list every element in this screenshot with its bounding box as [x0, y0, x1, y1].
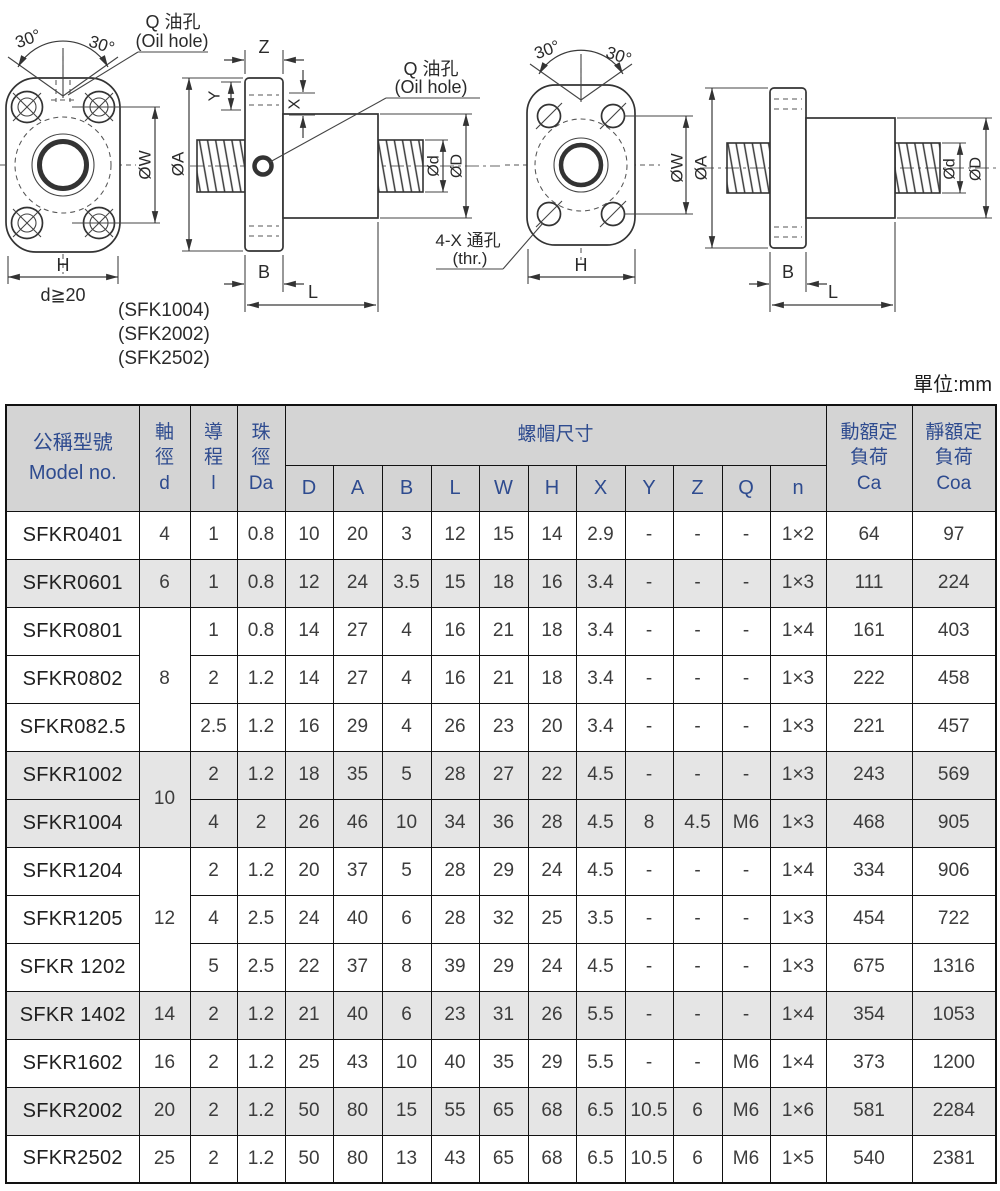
dim-ow: ØW	[136, 150, 155, 179]
dynamic-load-cell: 540	[826, 1135, 912, 1183]
value-cell: 10	[285, 511, 333, 559]
value-cell: 22	[285, 943, 333, 991]
value-cell: 40	[333, 991, 382, 1039]
value-cell: 8	[625, 799, 673, 847]
value-cell: 26	[528, 991, 576, 1039]
value-cell: 31	[479, 991, 528, 1039]
model-cell: SFKR1205	[6, 895, 139, 943]
value-cell: 12	[285, 559, 333, 607]
value-cell: 22	[528, 751, 576, 799]
header-model: 公稱型號 Model no.	[6, 405, 139, 511]
value-cell: -	[673, 703, 722, 751]
value-cell: -	[673, 655, 722, 703]
front-view-right: 30° 30° ØW H 4-X 通孔 (thr.)	[435, 37, 693, 284]
dim-od: Ød	[942, 158, 959, 179]
value-cell: 4.5	[576, 943, 625, 991]
value-cell: 50	[285, 1087, 333, 1135]
dynamic-load-cell: 454	[826, 895, 912, 943]
value-cell: 18	[528, 655, 576, 703]
model-note: (SFK2502)	[118, 348, 210, 368]
shaft-diameter-cell: 16	[139, 1039, 190, 1087]
value-cell: 43	[333, 1039, 382, 1087]
value-cell: -	[722, 847, 770, 895]
value-cell: 6.5	[576, 1135, 625, 1183]
model-note: (SFK2002)	[118, 324, 210, 345]
value-cell: 36	[479, 799, 528, 847]
value-cell: 18	[479, 559, 528, 607]
value-cell: -	[722, 895, 770, 943]
value-cell: 2	[190, 1039, 237, 1087]
value-cell: 15	[431, 559, 479, 607]
value-cell: 28	[431, 895, 479, 943]
value-cell: 29	[479, 943, 528, 991]
value-cell: 1.2	[237, 655, 285, 703]
dim-h: H	[575, 255, 588, 275]
shaft-diameter-cell: 12	[139, 847, 190, 991]
value-cell: 4.5	[576, 847, 625, 895]
value-cell: -	[673, 991, 722, 1039]
value-cell: 24	[528, 847, 576, 895]
value-cell: 1×4	[770, 607, 826, 655]
value-cell: 35	[333, 751, 382, 799]
value-cell: 4	[382, 607, 431, 655]
spec-table-body: SFKR0401410.8102031215142.9---1×26497SFK…	[6, 511, 996, 1183]
value-cell: 25	[528, 895, 576, 943]
model-cell: SFKR0401	[6, 511, 139, 559]
value-cell: 16	[431, 655, 479, 703]
value-cell: -	[722, 703, 770, 751]
header-col-L: L	[431, 465, 479, 511]
value-cell: 80	[333, 1087, 382, 1135]
value-cell: -	[625, 751, 673, 799]
value-cell: 10	[382, 799, 431, 847]
value-cell: 0.8	[237, 607, 285, 655]
value-cell: 34	[431, 799, 479, 847]
value-cell: 5.5	[576, 991, 625, 1039]
model-cell: SFKR1602	[6, 1039, 139, 1087]
value-cell: 8	[382, 943, 431, 991]
value-cell: 37	[333, 847, 382, 895]
header-lead: 導 程 l	[190, 405, 237, 511]
dynamic-load-cell: 468	[826, 799, 912, 847]
value-cell: -	[722, 751, 770, 799]
value-cell: -	[673, 847, 722, 895]
dynamic-load-cell: 243	[826, 751, 912, 799]
value-cell: 1×4	[770, 991, 826, 1039]
value-cell: 12	[431, 511, 479, 559]
value-cell: 46	[333, 799, 382, 847]
header-nut-dimensions: 螺帽尺寸	[285, 405, 826, 465]
value-cell: 5	[382, 847, 431, 895]
value-cell: 1.2	[237, 847, 285, 895]
value-cell: 3	[382, 511, 431, 559]
spec-table: 公稱型號 Model no. 軸 徑 d 導 程 l 珠 徑 Da 螺帽尺寸 動…	[5, 404, 997, 1184]
static-load-cell: 1316	[912, 943, 996, 991]
value-cell: 27	[333, 655, 382, 703]
header-dynamic-load: 動額定 負荷 Ca	[826, 405, 912, 511]
static-load-cell: 1053	[912, 991, 996, 1039]
dim-l: L	[828, 282, 838, 302]
value-cell: 29	[528, 1039, 576, 1087]
value-cell: 2	[237, 799, 285, 847]
value-cell: -	[722, 511, 770, 559]
static-load-cell: 457	[912, 703, 996, 751]
header-static-load: 靜額定 負荷 Coa	[912, 405, 996, 511]
value-cell: 5	[382, 751, 431, 799]
shaft-diameter-cell: 20	[139, 1087, 190, 1135]
side-view-right: ØA Ød ØD B L	[692, 88, 999, 312]
value-cell: 24	[333, 559, 382, 607]
value-cell: 1	[190, 511, 237, 559]
value-cell: 20	[285, 847, 333, 895]
dynamic-load-cell: 581	[826, 1087, 912, 1135]
dim-ow: ØW	[668, 153, 687, 182]
value-cell: 50	[285, 1135, 333, 1183]
value-cell: 14	[285, 655, 333, 703]
angle-label: 30°	[532, 37, 563, 64]
value-cell: 2.5	[190, 703, 237, 751]
angle-label: 30°	[13, 26, 44, 53]
value-cell: 1.2	[237, 751, 285, 799]
value-cell: 20	[333, 511, 382, 559]
model-cell: SFKR1204	[6, 847, 139, 895]
value-cell: 26	[285, 799, 333, 847]
value-cell: 15	[479, 511, 528, 559]
value-cell: -	[673, 607, 722, 655]
value-cell: 10.5	[625, 1087, 673, 1135]
static-load-cell: 458	[912, 655, 996, 703]
value-cell: 1×3	[770, 559, 826, 607]
value-cell: 4	[190, 895, 237, 943]
value-cell: 3.4	[576, 655, 625, 703]
value-cell: 1×4	[770, 1039, 826, 1087]
value-cell: 28	[528, 799, 576, 847]
value-cell: 1×3	[770, 895, 826, 943]
value-cell: -	[673, 751, 722, 799]
table-row: SFKR25022521.25080134365686.510.56M61×55…	[6, 1135, 996, 1183]
value-cell: 2	[190, 847, 237, 895]
value-cell: 27	[333, 607, 382, 655]
oil-hole-label: (Oil hole)	[394, 77, 467, 97]
header-col-B: B	[382, 465, 431, 511]
value-cell: M6	[722, 1135, 770, 1183]
value-cell: -	[625, 847, 673, 895]
header-col-A: A	[333, 465, 382, 511]
static-load-cell: 403	[912, 607, 996, 655]
value-cell: 29	[333, 703, 382, 751]
value-cell: 2	[190, 655, 237, 703]
value-cell: -	[625, 607, 673, 655]
static-load-cell: 1200	[912, 1039, 996, 1087]
static-load-cell: 722	[912, 895, 996, 943]
dynamic-load-cell: 354	[826, 991, 912, 1039]
dim-od: Ød	[426, 155, 443, 176]
value-cell: 1×4	[770, 847, 826, 895]
value-cell: -	[673, 943, 722, 991]
value-cell: 1.2	[237, 1135, 285, 1183]
value-cell: -	[625, 1039, 673, 1087]
value-cell: -	[673, 511, 722, 559]
value-cell: -	[673, 559, 722, 607]
value-cell: 4.5	[673, 799, 722, 847]
static-load-cell: 97	[912, 511, 996, 559]
header-col-n: n	[770, 465, 826, 511]
model-cell: SFKR 1202	[6, 943, 139, 991]
value-cell: -	[625, 655, 673, 703]
ballscrew-drawing-svg: 30° 30° Q 油孔 (Oil hole) ØW H d≧20	[0, 0, 1000, 368]
value-cell: 16	[431, 607, 479, 655]
model-note: (SFK1004)	[118, 300, 210, 321]
value-cell: 1×6	[770, 1087, 826, 1135]
value-cell: 14	[528, 511, 576, 559]
model-cell: SFKR2502	[6, 1135, 139, 1183]
value-cell: 21	[479, 655, 528, 703]
header-col-X: X	[576, 465, 625, 511]
static-load-cell: 224	[912, 559, 996, 607]
spec-table-header: 公稱型號 Model no. 軸 徑 d 導 程 l 珠 徑 Da 螺帽尺寸 動…	[6, 405, 996, 511]
dynamic-load-cell: 334	[826, 847, 912, 895]
table-row: SFKR16021621.22543104035295.5--M61×43731…	[6, 1039, 996, 1087]
value-cell: 3.4	[576, 559, 625, 607]
model-cell: SFKR0801	[6, 607, 139, 655]
value-cell: -	[625, 703, 673, 751]
value-cell: 14	[285, 607, 333, 655]
static-load-cell: 569	[912, 751, 996, 799]
value-cell: 4	[382, 655, 431, 703]
value-cell: 1.2	[237, 991, 285, 1039]
dynamic-load-cell: 111	[826, 559, 912, 607]
model-cell: SFKR 1402	[6, 991, 139, 1039]
value-cell: 2.5	[237, 943, 285, 991]
value-cell: 2.9	[576, 511, 625, 559]
value-cell: 3.4	[576, 607, 625, 655]
shaft-diameter-cell: 8	[139, 607, 190, 751]
header-col-W: W	[479, 465, 528, 511]
value-cell: 23	[431, 991, 479, 1039]
static-load-cell: 905	[912, 799, 996, 847]
static-load-cell: 2284	[912, 1087, 996, 1135]
shaft-diameter-cell: 4	[139, 511, 190, 559]
table-row: SFKR20022021.25080155565686.510.56M61×65…	[6, 1087, 996, 1135]
value-cell: 65	[479, 1135, 528, 1183]
value-cell: M6	[722, 799, 770, 847]
value-cell: 43	[431, 1135, 479, 1183]
technical-drawing: 30° 30° Q 油孔 (Oil hole) ØW H d≧20	[0, 0, 1000, 368]
value-cell: 4	[382, 703, 431, 751]
header-shaft-diameter: 軸 徑 d	[139, 405, 190, 511]
dynamic-load-cell: 64	[826, 511, 912, 559]
model-cell: SFKR1004	[6, 799, 139, 847]
value-cell: 10	[382, 1039, 431, 1087]
value-cell: 26	[431, 703, 479, 751]
header-col-D: D	[285, 465, 333, 511]
value-cell: 18	[528, 607, 576, 655]
shaft-diameter-cell: 14	[139, 991, 190, 1039]
table-row: SFKR 14021421.2214062331265.5---1×435410…	[6, 991, 996, 1039]
value-cell: 39	[431, 943, 479, 991]
note-d20: d≧20	[40, 285, 85, 305]
value-cell: 28	[431, 751, 479, 799]
value-cell: 24	[285, 895, 333, 943]
value-cell: 25	[285, 1039, 333, 1087]
model-cell: SFKR1002	[6, 751, 139, 799]
oil-hole-label: (Oil hole)	[135, 31, 208, 51]
angle-label: 30°	[87, 32, 117, 58]
static-load-cell: 906	[912, 847, 996, 895]
header-col-Y: Y	[625, 465, 673, 511]
value-cell: -	[625, 511, 673, 559]
header-col-Z: Z	[673, 465, 722, 511]
value-cell: 16	[528, 559, 576, 607]
table-row: SFKR10021021.2183552827224.5---1×3243569	[6, 751, 996, 799]
unit-label: 單位:mm	[0, 368, 1000, 404]
value-cell: 0.8	[237, 559, 285, 607]
value-cell: 29	[479, 847, 528, 895]
value-cell: 1	[190, 607, 237, 655]
value-cell: 40	[431, 1039, 479, 1087]
angle-label: 30°	[604, 43, 634, 69]
value-cell: 2	[190, 991, 237, 1039]
table-row: SFKR12041221.2203752829244.5---1×4334906	[6, 847, 996, 895]
value-cell: 80	[333, 1135, 382, 1183]
header-col-H: H	[528, 465, 576, 511]
header-col-Q: Q	[722, 465, 770, 511]
dynamic-load-cell: 161	[826, 607, 912, 655]
value-cell: 1×2	[770, 511, 826, 559]
oil-hole	[255, 158, 272, 175]
value-cell: 6.5	[576, 1087, 625, 1135]
value-cell: 2	[190, 751, 237, 799]
value-cell: 10.5	[625, 1135, 673, 1183]
value-cell: 6	[673, 1087, 722, 1135]
value-cell: 1×5	[770, 1135, 826, 1183]
dim-x: X	[287, 98, 304, 109]
value-cell: 68	[528, 1135, 576, 1183]
value-cell: 3.4	[576, 703, 625, 751]
value-cell: 1×3	[770, 703, 826, 751]
dynamic-load-cell: 675	[826, 943, 912, 991]
value-cell: -	[625, 895, 673, 943]
value-cell: 1.2	[237, 703, 285, 751]
value-cell: 35	[479, 1039, 528, 1087]
value-cell: M6	[722, 1039, 770, 1087]
dim-b: B	[782, 262, 794, 282]
value-cell: 4.5	[576, 799, 625, 847]
value-cell: 21	[285, 991, 333, 1039]
value-cell: 2.5	[237, 895, 285, 943]
value-cell: M6	[722, 1087, 770, 1135]
value-cell: -	[625, 559, 673, 607]
shaft-diameter-cell: 6	[139, 559, 190, 607]
value-cell: 3.5	[576, 895, 625, 943]
shaft-diameter-cell: 10	[139, 751, 190, 847]
value-cell: 55	[431, 1087, 479, 1135]
value-cell: 23	[479, 703, 528, 751]
value-cell: -	[673, 895, 722, 943]
value-cell: 37	[333, 943, 382, 991]
thru-hole-label: (thr.)	[453, 249, 488, 268]
value-cell: 18	[285, 751, 333, 799]
value-cell: -	[722, 991, 770, 1039]
dim-oa: ØA	[169, 151, 188, 176]
side-view-left: ØA Z Y X Q 油孔 (Oil hole) Ød ØD	[118, 37, 500, 368]
value-cell: -	[722, 559, 770, 607]
value-cell: 0.8	[237, 511, 285, 559]
value-cell: 6	[382, 895, 431, 943]
oil-hole-label: Q 油孔	[145, 12, 200, 32]
value-cell: 16	[285, 703, 333, 751]
value-cell: 2	[190, 1087, 237, 1135]
value-cell: 1×3	[770, 799, 826, 847]
value-cell: 20	[528, 703, 576, 751]
model-cell: SFKR082.5	[6, 703, 139, 751]
value-cell: 1×3	[770, 751, 826, 799]
value-cell: 24	[528, 943, 576, 991]
dim-oa: ØA	[692, 155, 711, 180]
value-cell: 6	[382, 991, 431, 1039]
dim-z: Z	[259, 37, 270, 57]
model-cell: SFKR2002	[6, 1087, 139, 1135]
dim-y: Y	[207, 90, 224, 101]
table-row: SFKR0801810.8142741621183.4---1×4161403	[6, 607, 996, 655]
oil-hole-label: Q 油孔	[403, 59, 458, 79]
dynamic-load-cell: 373	[826, 1039, 912, 1087]
value-cell: 5	[190, 943, 237, 991]
value-cell: 65	[479, 1087, 528, 1135]
value-cell: -	[625, 991, 673, 1039]
value-cell: 28	[431, 847, 479, 895]
value-cell: 1	[190, 559, 237, 607]
value-cell: 2	[190, 1135, 237, 1183]
value-cell: 32	[479, 895, 528, 943]
value-cell: 40	[333, 895, 382, 943]
table-row: SFKR0401410.8102031215142.9---1×26497	[6, 511, 996, 559]
value-cell: -	[625, 943, 673, 991]
dim-h: H	[57, 255, 70, 275]
static-load-cell: 2381	[912, 1135, 996, 1183]
value-cell: 15	[382, 1087, 431, 1135]
value-cell: 3.5	[382, 559, 431, 607]
thru-hole-label: 4-X 通孔	[435, 231, 500, 250]
value-cell: 1×3	[770, 655, 826, 703]
value-cell: 27	[479, 751, 528, 799]
value-cell: 6	[673, 1135, 722, 1183]
value-cell: -	[673, 1039, 722, 1087]
value-cell: 1.2	[237, 1039, 285, 1087]
value-cell: 1×3	[770, 943, 826, 991]
value-cell: 13	[382, 1135, 431, 1183]
value-cell: 1.2	[237, 1087, 285, 1135]
value-cell: 68	[528, 1087, 576, 1135]
value-cell: 4	[190, 799, 237, 847]
model-cell: SFKR0802	[6, 655, 139, 703]
value-cell: -	[722, 943, 770, 991]
shaft-diameter-cell: 25	[139, 1135, 190, 1183]
value-cell: -	[722, 607, 770, 655]
value-cell: 5.5	[576, 1039, 625, 1087]
table-row: SFKR0601610.812243.51518163.4---1×311122…	[6, 559, 996, 607]
value-cell: 21	[479, 607, 528, 655]
dim-l: L	[308, 282, 318, 302]
dim-odd: ØD	[968, 157, 985, 181]
header-ball-diameter: 珠 徑 Da	[237, 405, 285, 511]
dynamic-load-cell: 222	[826, 655, 912, 703]
dynamic-load-cell: 221	[826, 703, 912, 751]
dim-b: B	[258, 262, 270, 282]
model-cell: SFKR0601	[6, 559, 139, 607]
dim-odd: ØD	[449, 154, 466, 178]
value-cell: 4.5	[576, 751, 625, 799]
